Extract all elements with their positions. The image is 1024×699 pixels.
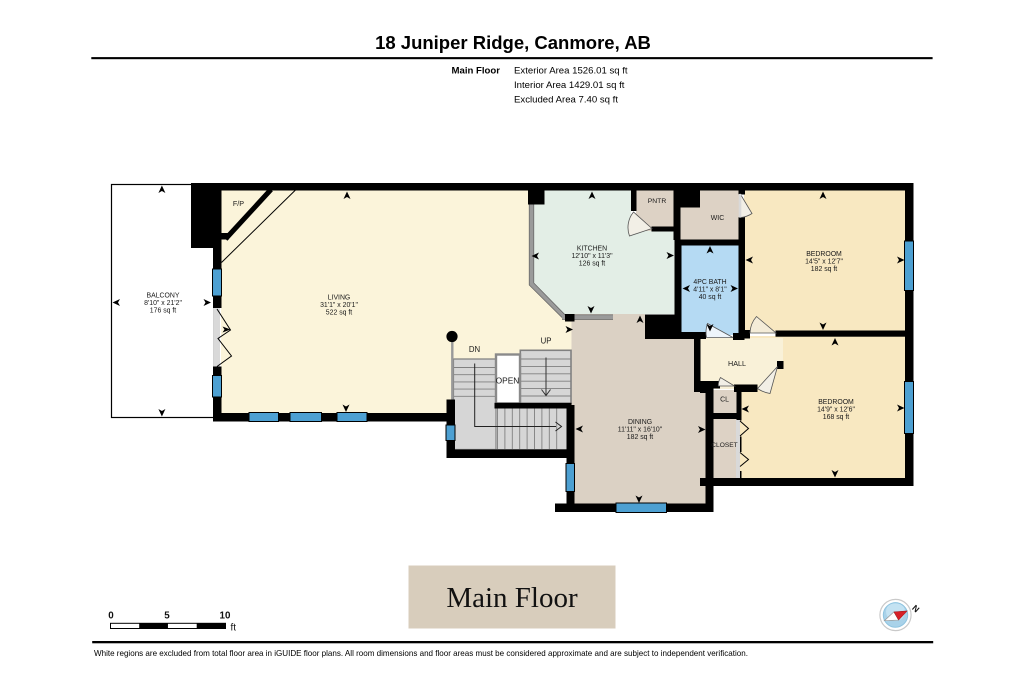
svg-text:18 Juniper Ridge, Canmore, AB: 18 Juniper Ridge, Canmore, AB	[375, 32, 651, 53]
svg-text:White regions are excluded fro: White regions are excluded from total fl…	[94, 649, 748, 658]
svg-text:11'11" x 16'10": 11'11" x 16'10"	[618, 427, 663, 434]
svg-text:4'11" x 8'1": 4'11" x 8'1"	[693, 287, 727, 294]
svg-text:182 sq ft: 182 sq ft	[627, 434, 654, 441]
svg-text:31'1" x 20'1": 31'1" x 20'1"	[320, 302, 358, 309]
svg-text:BEDROOM: BEDROOM	[818, 399, 854, 406]
svg-text:4PC BATH: 4PC BATH	[693, 279, 726, 286]
svg-text:CL: CL	[720, 397, 729, 404]
svg-text:126 sq ft: 126 sq ft	[579, 261, 606, 268]
svg-text:CLOSET: CLOSET	[711, 442, 737, 449]
svg-text:12'10" x 11'3": 12'10" x 11'3"	[571, 253, 613, 260]
svg-text:BALCONY: BALCONY	[147, 293, 180, 300]
svg-text:PNTR: PNTR	[648, 198, 667, 205]
svg-text:522 sq ft: 522 sq ft	[326, 310, 353, 317]
svg-text:Interior Area 1429.01 sq ft: Interior Area 1429.01 sq ft	[514, 80, 625, 91]
svg-text:Main Floor: Main Floor	[452, 66, 501, 77]
svg-text:40 sq ft: 40 sq ft	[699, 294, 722, 301]
svg-text:ft: ft	[231, 623, 237, 634]
svg-text:168 sq ft: 168 sq ft	[823, 414, 850, 421]
svg-text:Exterior Area 1526.01 sq ft: Exterior Area 1526.01 sq ft	[514, 66, 628, 77]
svg-text:F/P: F/P	[233, 199, 244, 208]
svg-text:0: 0	[108, 611, 114, 622]
svg-text:5: 5	[164, 611, 170, 622]
svg-text:DINING: DINING	[628, 419, 652, 426]
svg-text:UP: UP	[541, 337, 552, 346]
svg-text:8'10" x 21'2": 8'10" x 21'2"	[144, 300, 182, 307]
svg-text:14'9" x 12'6": 14'9" x 12'6"	[817, 407, 855, 414]
svg-text:14'5" x 12'7": 14'5" x 12'7"	[805, 259, 843, 266]
svg-text:KITCHEN: KITCHEN	[577, 246, 607, 253]
svg-text:176 sq ft: 176 sq ft	[150, 308, 177, 315]
svg-text:DN: DN	[469, 345, 480, 354]
svg-text:182 sq ft: 182 sq ft	[811, 266, 838, 273]
svg-text:OPEN: OPEN	[496, 376, 520, 386]
svg-text:Main Floor: Main Floor	[446, 582, 578, 614]
svg-text:BEDROOM: BEDROOM	[806, 251, 842, 258]
svg-text:10: 10	[220, 611, 231, 622]
svg-text:HALL: HALL	[728, 359, 746, 368]
svg-text:LIVING: LIVING	[328, 295, 351, 302]
svg-text:WIC: WIC	[711, 215, 724, 222]
svg-text:Excluded Area 7.40 sq ft: Excluded Area 7.40 sq ft	[514, 95, 618, 106]
